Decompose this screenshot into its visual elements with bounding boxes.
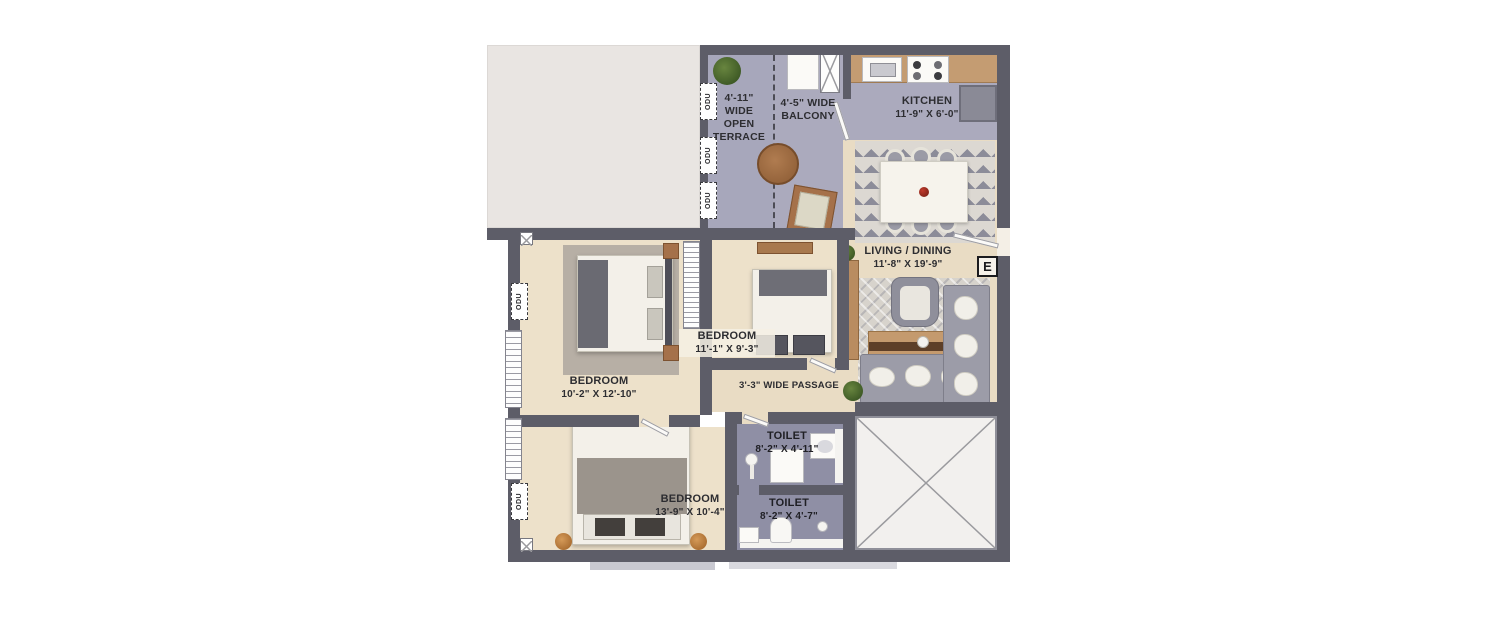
basin xyxy=(739,527,759,543)
table-centerpiece xyxy=(919,187,929,197)
wall-bed2-living xyxy=(837,240,849,370)
toilet-bottom-label: TOILET 8'-2" X 4'-7" xyxy=(745,497,833,523)
exterior-ledge xyxy=(729,562,897,569)
balcony-label: 4'-5" WIDE BALCONY xyxy=(771,97,845,123)
bedside-lamp xyxy=(555,533,572,550)
toilet-top-label: TOILET 8'-2" X 4'-11" xyxy=(743,430,831,456)
exterior-ledge xyxy=(590,562,715,570)
sofa-right xyxy=(943,285,990,405)
wall-right xyxy=(997,45,1010,562)
kitchen-sink xyxy=(862,57,902,82)
odu-tag: ODU xyxy=(700,182,717,219)
armchair xyxy=(891,277,939,327)
passage-label: 3'-3" WIDE PASSAGE xyxy=(731,380,847,392)
wall-living-shaft xyxy=(855,402,997,416)
window xyxy=(505,330,522,408)
nightstand xyxy=(663,345,679,361)
bedroom-bottom-label: BEDROOM 13'-9" X 10'-4" xyxy=(633,493,747,519)
kitchen-hob xyxy=(907,56,949,83)
floorplan: ODU ODU ODU ODU ODU 4'-11" WIDE OPEN TER… xyxy=(487,45,1010,572)
wardrobe-mid xyxy=(757,242,813,254)
outside-area xyxy=(487,45,700,228)
bedside-lamp xyxy=(690,533,707,550)
wall-bed1-bottom xyxy=(508,415,700,427)
floorplan-canvas: ODU ODU ODU ODU ODU 4'-11" WIDE OPEN TER… xyxy=(0,0,1500,625)
kitchen-label: KITCHEN 11'-9" X 6'-0" xyxy=(875,95,979,121)
wardrobe-left-bedroom xyxy=(683,241,700,329)
washing-machine xyxy=(787,53,819,90)
corner-box xyxy=(520,232,533,245)
nightstand xyxy=(663,243,679,259)
corner-box xyxy=(520,538,533,551)
terrace-label: 4'-11" WIDE OPEN TERRACE xyxy=(707,92,771,145)
wall-bed1-bed2 xyxy=(700,240,712,415)
bedroom-mid-label: BEDROOM 11'-1" X 9'-3" xyxy=(679,329,775,357)
living-label: LIVING / DINING 11'-8" X 19'-9" xyxy=(855,245,961,271)
odu-tag: ODU xyxy=(511,483,528,520)
plant xyxy=(713,57,741,85)
balcony-table xyxy=(757,143,799,185)
window xyxy=(505,418,522,480)
foot-stool xyxy=(793,335,825,355)
odu-tag: ODU xyxy=(511,283,528,320)
shaft-crossed xyxy=(855,416,997,550)
wall-mid-horizontal xyxy=(487,228,855,240)
bedroom-left-label: BEDROOM 10'-2" X 12'-10" xyxy=(542,375,656,401)
pedestal-basin-stem xyxy=(750,465,754,479)
wall-bed3-toilets xyxy=(725,412,737,550)
bed-bottom xyxy=(572,423,690,545)
wall-bottom xyxy=(508,550,1010,562)
duct-box xyxy=(820,49,840,93)
wall-toilets-shaft xyxy=(843,412,855,550)
entrance-marker: E xyxy=(977,256,998,277)
wall-top xyxy=(700,45,1010,55)
entrance-opening xyxy=(997,228,1010,256)
wall-balcony-kitchen xyxy=(843,55,851,99)
bed-left xyxy=(577,255,673,352)
toilet-top-ledge xyxy=(835,429,843,483)
